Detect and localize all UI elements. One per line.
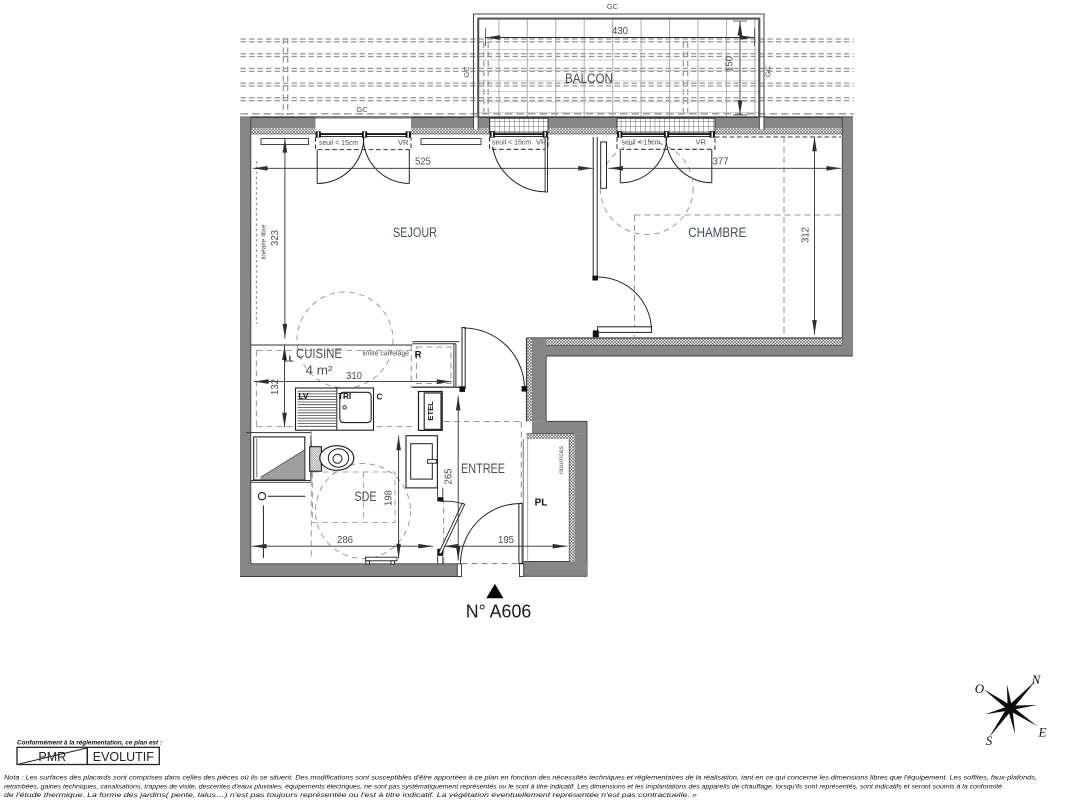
svg-text:430: 430: [612, 26, 628, 37]
svg-text:de l'étude thermique. La forme: de l'étude thermique. La forme des jardi…: [4, 792, 698, 799]
svg-text:SDE: SDE: [355, 489, 377, 504]
svg-text:198: 198: [383, 490, 394, 506]
svg-text:nourrices: nourrices: [558, 445, 565, 474]
svg-text:VR: VR: [695, 138, 706, 147]
svg-text:LV: LV: [299, 392, 309, 401]
svg-text:VR: VR: [536, 138, 547, 147]
svg-text:C: C: [377, 392, 383, 401]
svg-text:265: 265: [444, 468, 455, 484]
svg-text:CHAMBRE: CHAMBRE: [688, 225, 746, 240]
svg-text:195: 195: [498, 535, 514, 546]
svg-text:seuil < 15cm: seuil < 15cm: [319, 138, 358, 147]
svg-text:R: R: [415, 350, 422, 361]
svg-text:312: 312: [800, 227, 811, 243]
svg-text:PL: PL: [535, 498, 548, 509]
svg-text:GC: GC: [462, 66, 471, 78]
svg-text:132: 132: [270, 379, 281, 395]
svg-text:EVOLUTIF: EVOLUTIF: [93, 750, 154, 764]
svg-text:seuil < 15cm: seuil < 15cm: [492, 138, 531, 147]
svg-text:S: S: [986, 733, 993, 748]
svg-text:ETEL: ETEL: [426, 401, 435, 421]
svg-text:ENTREE: ENTREE: [461, 461, 505, 476]
svg-text:seuil < 15cm: seuil < 15cm: [622, 138, 661, 147]
svg-text:GC: GC: [763, 65, 772, 77]
svg-text:Nota : Les surfaces des placar: Nota : Les surfaces des placards sont co…: [4, 775, 1037, 782]
svg-text:PMR: PMR: [38, 750, 66, 764]
svg-text:377: 377: [713, 156, 729, 167]
svg-text:286: 286: [337, 535, 353, 546]
svg-text:GC: GC: [607, 2, 619, 11]
svg-text:LL: LL: [284, 354, 294, 363]
svg-text:GC: GC: [356, 105, 368, 114]
svg-text:TRI: TRI: [338, 392, 351, 401]
svg-text:Conformément à la réglementati: Conformément à la réglementation, ce pla…: [17, 739, 162, 746]
svg-text:SEJOUR: SEJOUR: [393, 225, 437, 240]
svg-text:linéaire libre: linéaire libre: [260, 224, 267, 259]
svg-text:E: E: [1038, 725, 1047, 740]
svg-text:N: N: [1031, 672, 1042, 687]
svg-text:retombées, gaines techniques,: retombées, gaines techniques, canalisati…: [4, 783, 1003, 790]
svg-text:4 m²: 4 m²: [306, 363, 333, 377]
svg-text:N° A606: N° A606: [466, 601, 532, 621]
svg-text:150: 150: [725, 56, 736, 72]
svg-text:VR: VR: [398, 138, 409, 147]
svg-text:323: 323: [270, 230, 281, 246]
svg-text:limite carrelage: limite carrelage: [363, 350, 410, 357]
svg-text:CUISINE: CUISINE: [296, 346, 342, 361]
svg-text:O: O: [975, 681, 985, 696]
svg-text:BALCON: BALCON: [565, 71, 613, 86]
svg-text:310: 310: [346, 371, 362, 382]
svg-text:525: 525: [415, 156, 431, 167]
